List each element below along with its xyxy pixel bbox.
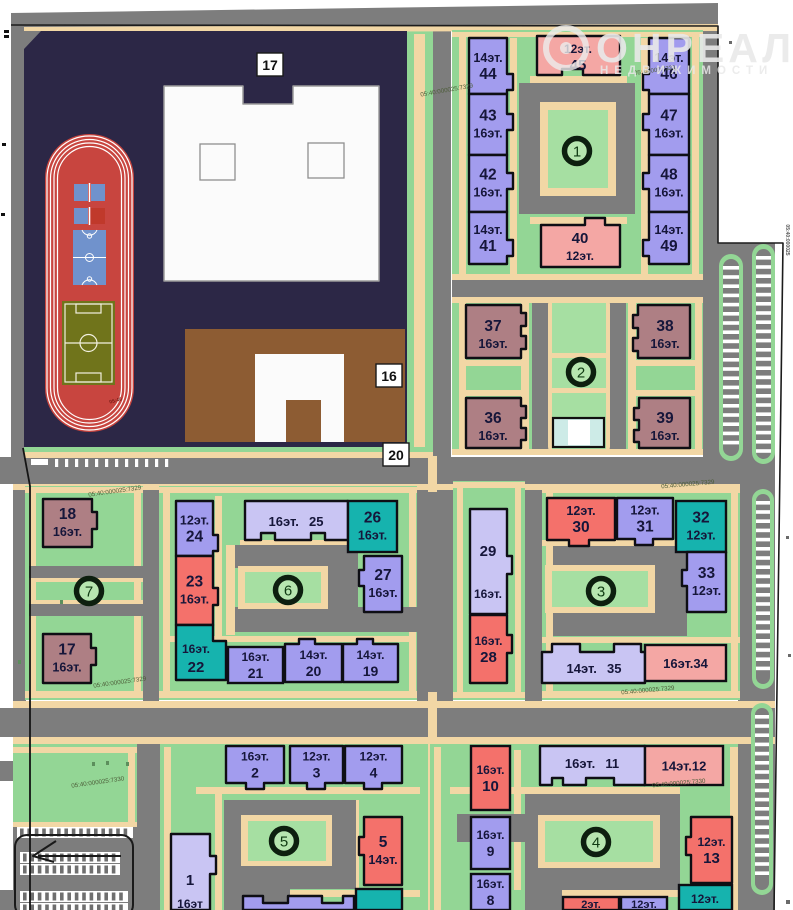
svg-text:20: 20 (388, 447, 404, 463)
svg-text:16эт.: 16эт. (241, 750, 269, 764)
svg-text:12эт.: 12эт. (360, 750, 388, 764)
svg-text:16эт.: 16эт. (473, 186, 502, 200)
svg-text:14эт.12: 14эт.12 (662, 759, 707, 774)
svg-text:1: 1 (186, 872, 194, 889)
svg-text:16эт.: 16эт. (654, 127, 683, 141)
svg-text:23: 23 (186, 574, 204, 591)
svg-text:16эт.: 16эт. (474, 587, 502, 601)
svg-text:1: 1 (573, 144, 581, 161)
svg-text:20: 20 (306, 663, 322, 679)
svg-text:5: 5 (379, 834, 388, 851)
svg-text:05:40:000025: 05:40:000025 (784, 224, 790, 255)
svg-text:14эт.: 14эт. (300, 648, 328, 662)
svg-text:12эт.: 12эт. (686, 529, 715, 543)
svg-text:27: 27 (374, 567, 391, 584)
svg-text:6: 6 (284, 583, 292, 600)
svg-text:16эт.: 16эт. (477, 877, 505, 891)
svg-text:16эт.: 16эт. (478, 429, 507, 443)
svg-text:9: 9 (487, 843, 495, 859)
svg-text:7: 7 (85, 584, 93, 601)
svg-text:16эт.: 16эт. (180, 593, 209, 607)
svg-text:16эт.: 16эт. (368, 586, 397, 600)
svg-text:17: 17 (262, 57, 278, 73)
svg-text:16: 16 (381, 368, 397, 384)
svg-text:14эт.: 14эт. (654, 223, 683, 237)
svg-text:16эт.: 16эт. (473, 127, 502, 141)
svg-text:14эт.: 14эт. (473, 223, 502, 237)
svg-text:10: 10 (482, 778, 499, 795)
svg-text:28: 28 (480, 649, 497, 666)
svg-text:32: 32 (692, 510, 709, 527)
svg-text:19: 19 (363, 663, 379, 679)
svg-text:16эт. 11: 16эт. 11 (565, 756, 619, 771)
svg-text:16эт: 16эт (177, 897, 203, 910)
svg-text:13: 13 (703, 850, 720, 867)
svg-text:16эт.: 16эт. (477, 828, 505, 842)
svg-text:12эт.: 12эт. (698, 835, 726, 849)
svg-text:НЕДВИЖИМОСТИ: НЕДВИЖИМОСТИ (600, 65, 773, 77)
svg-text:44: 44 (479, 66, 497, 83)
svg-text:4: 4 (370, 765, 378, 781)
svg-text:49: 49 (660, 238, 678, 255)
svg-text:2: 2 (577, 365, 585, 382)
svg-text:17: 17 (58, 642, 75, 659)
svg-text:47: 47 (660, 108, 677, 125)
svg-text:12эт.: 12эт. (691, 892, 719, 906)
svg-text:12эт.: 12эт. (631, 899, 657, 910)
svg-text:48: 48 (660, 167, 678, 184)
svg-text:42: 42 (479, 167, 496, 184)
svg-text:14эт.: 14эт. (473, 51, 502, 65)
svg-text:4: 4 (592, 835, 600, 852)
svg-text:21: 21 (248, 665, 264, 681)
svg-text:33: 33 (698, 565, 716, 582)
svg-text:16эт.: 16эт. (182, 642, 210, 656)
svg-text:40: 40 (572, 230, 589, 247)
svg-text:22: 22 (188, 659, 205, 676)
svg-text:29: 29 (480, 543, 497, 560)
svg-text:16эт.: 16эт. (650, 429, 679, 443)
svg-text:14эт. 35: 14эт. 35 (567, 661, 622, 676)
svg-text:41: 41 (479, 238, 497, 255)
svg-text:43: 43 (479, 108, 497, 125)
svg-text:2: 2 (251, 765, 259, 781)
svg-text:38: 38 (656, 318, 674, 335)
svg-text:16эт.: 16эт. (53, 525, 82, 539)
svg-text:24: 24 (186, 529, 204, 546)
svg-text:12эт.: 12эт. (692, 584, 721, 598)
svg-text:39: 39 (656, 410, 674, 427)
svg-text:16эт.: 16эт. (650, 337, 679, 351)
svg-text:16эт.: 16эт. (477, 763, 505, 777)
svg-text:12эт.: 12эт. (630, 504, 659, 518)
svg-text:26: 26 (364, 510, 382, 527)
svg-text:37: 37 (484, 318, 501, 335)
svg-text:16эт.: 16эт. (52, 661, 81, 675)
svg-text:36: 36 (484, 410, 502, 427)
svg-text:16эт.: 16эт. (475, 634, 503, 648)
svg-text:5: 5 (280, 834, 288, 851)
svg-text:8: 8 (487, 892, 495, 908)
svg-text:16эт.: 16эт. (654, 186, 683, 200)
svg-text:16эт.: 16эт. (478, 337, 507, 351)
svg-text:12эт.: 12эт. (180, 514, 209, 528)
svg-text:30: 30 (572, 519, 589, 536)
svg-text:12эт.: 12эт. (303, 750, 331, 764)
svg-text:16эт.34: 16эт.34 (663, 656, 709, 671)
svg-text:14эт.: 14эт. (368, 853, 397, 867)
svg-text:3: 3 (597, 584, 605, 601)
svg-text:16эт. 25: 16эт. 25 (269, 514, 324, 529)
svg-text:16эт.: 16эт. (242, 650, 270, 664)
svg-text:18: 18 (59, 506, 77, 523)
svg-text:16эт.: 16эт. (358, 529, 387, 543)
svg-text:12эт.: 12эт. (566, 249, 594, 263)
svg-text:12эт.: 12эт. (566, 504, 595, 518)
svg-text:2эт.: 2эт. (581, 899, 601, 910)
svg-text:31: 31 (636, 519, 654, 536)
svg-text:14эт.: 14эт. (357, 648, 385, 662)
svg-text:3: 3 (313, 765, 321, 781)
